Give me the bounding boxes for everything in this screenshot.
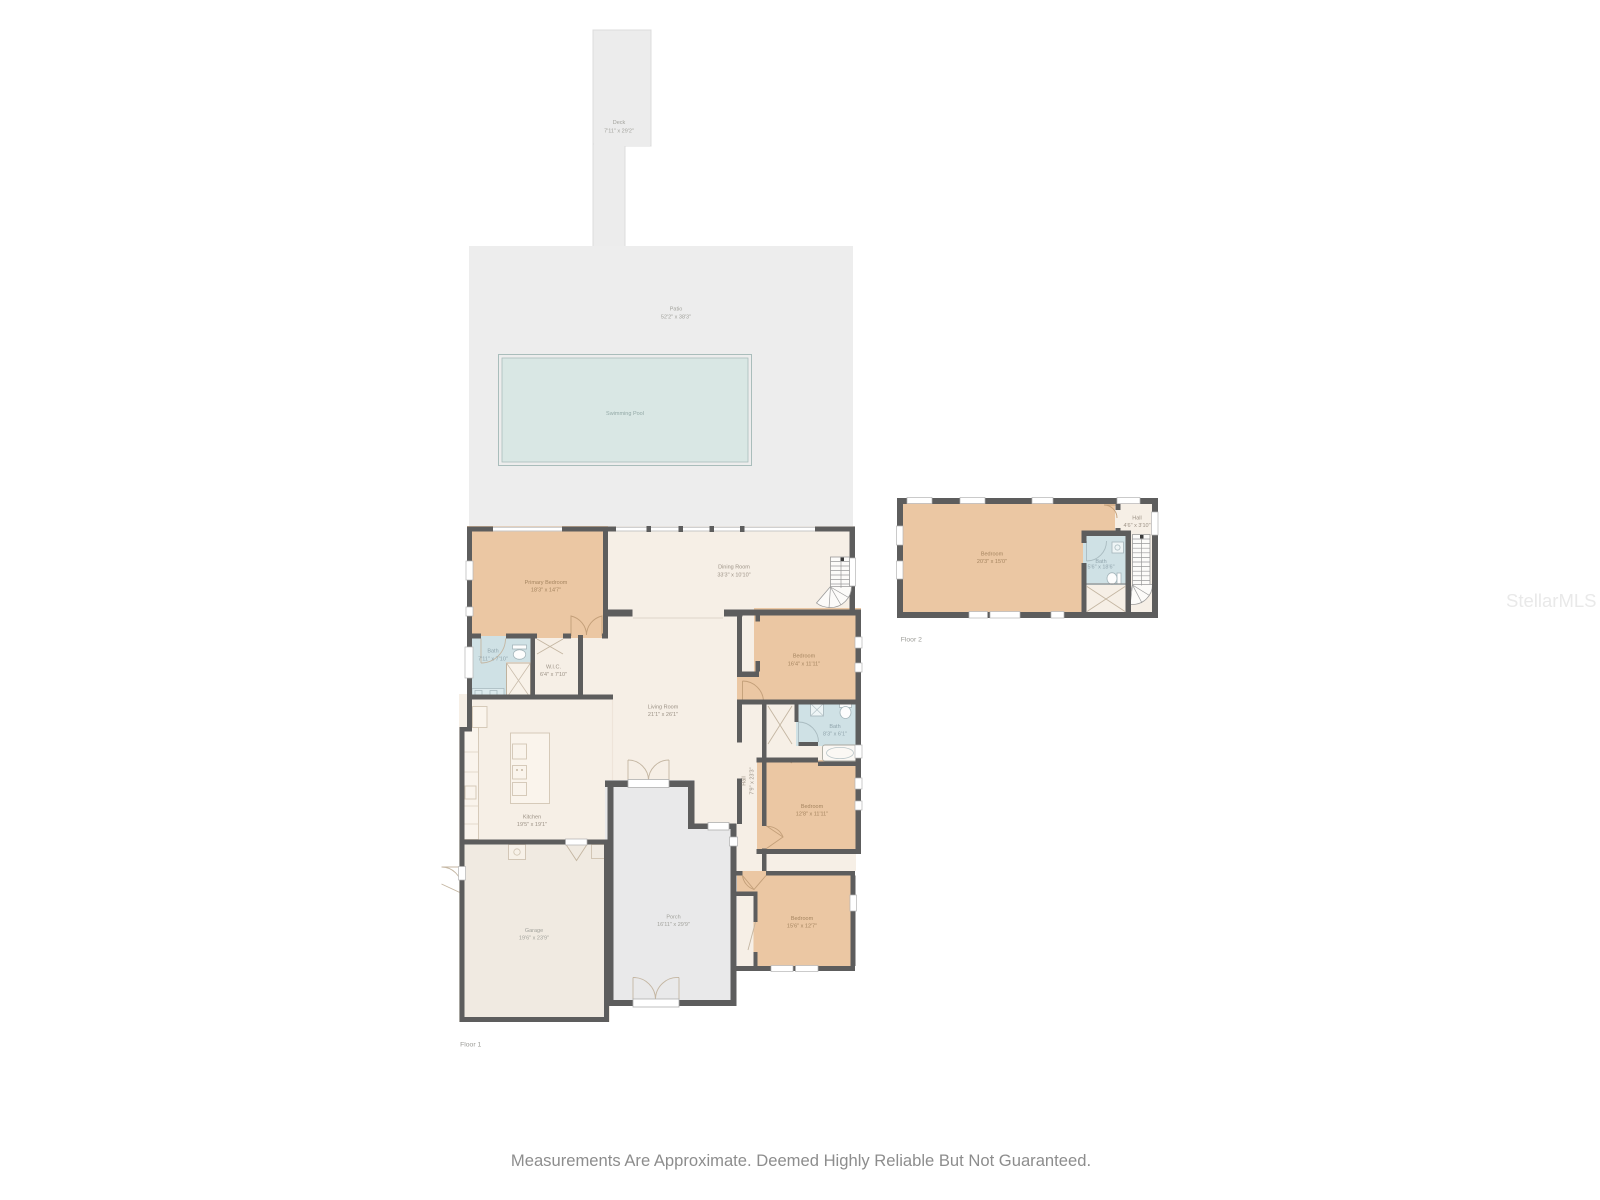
svg-text:20'3" x 15'0": 20'3" x 15'0" [977, 559, 1007, 565]
svg-text:Kitchen: Kitchen [523, 814, 541, 820]
svg-text:Patio: Patio [670, 306, 683, 312]
svg-text:7'11" x 7'10": 7'11" x 7'10" [478, 657, 508, 663]
svg-text:Deck: Deck [613, 120, 626, 126]
svg-text:Hall: Hall [1132, 516, 1141, 522]
svg-text:7'11" x 29'2": 7'11" x 29'2" [604, 128, 634, 134]
svg-text:Garage: Garage [525, 928, 543, 934]
svg-text:Floor 1: Floor 1 [460, 1042, 481, 1049]
svg-text:19'6" x 23'9": 19'6" x 23'9" [519, 936, 549, 942]
svg-text:Bedroom: Bedroom [793, 654, 816, 660]
svg-text:Bedroom: Bedroom [801, 804, 824, 810]
svg-text:6'4" x 7'10": 6'4" x 7'10" [540, 672, 567, 678]
svg-text:4'6" x 3'10": 4'6" x 3'10" [1123, 523, 1150, 529]
svg-text:Hall: Hall [742, 776, 748, 785]
svg-text:StellarMLS: StellarMLS [1506, 590, 1596, 611]
svg-text:Bath: Bath [829, 724, 840, 730]
svg-text:Floor 2: Floor 2 [901, 637, 922, 644]
svg-text:Primary Bedroom: Primary Bedroom [525, 580, 568, 586]
svg-text:8'3" x 6'1": 8'3" x 6'1" [823, 732, 847, 738]
svg-text:Swimming Pool: Swimming Pool [606, 411, 644, 417]
svg-text:Bath: Bath [487, 649, 498, 655]
svg-text:52'2" x 38'3": 52'2" x 38'3" [661, 315, 691, 321]
svg-text:Bedroom: Bedroom [791, 916, 814, 922]
svg-text:16'11" x 29'9": 16'11" x 29'9" [657, 922, 690, 928]
svg-text:W.I.C.: W.I.C. [546, 665, 561, 671]
svg-text:19'5" x 19'1": 19'5" x 19'1" [517, 822, 547, 828]
svg-text:18'3" x 14'7": 18'3" x 14'7" [531, 588, 561, 594]
svg-text:Measurements Are Approximate.: Measurements Are Approximate. Deemed Hig… [511, 1151, 1091, 1170]
svg-text:16'4" x 11'11": 16'4" x 11'11" [788, 662, 820, 668]
svg-text:21'1" x 26'1": 21'1" x 26'1" [648, 712, 678, 718]
svg-text:5'6" x 18'6": 5'6" x 18'6" [1087, 565, 1114, 571]
svg-text:Bedroom: Bedroom [981, 552, 1004, 558]
svg-text:15'6" x 12'7": 15'6" x 12'7" [787, 923, 817, 929]
svg-text:Dining Room: Dining Room [718, 564, 750, 570]
svg-text:Porch: Porch [666, 914, 680, 920]
svg-text:7'9" x 23'3": 7'9" x 23'3" [750, 767, 756, 794]
svg-text:33'3" x 10'10": 33'3" x 10'10" [717, 573, 750, 579]
svg-text:12'8" x 11'11": 12'8" x 11'11" [796, 812, 828, 818]
svg-text:Living Room: Living Room [648, 704, 679, 710]
